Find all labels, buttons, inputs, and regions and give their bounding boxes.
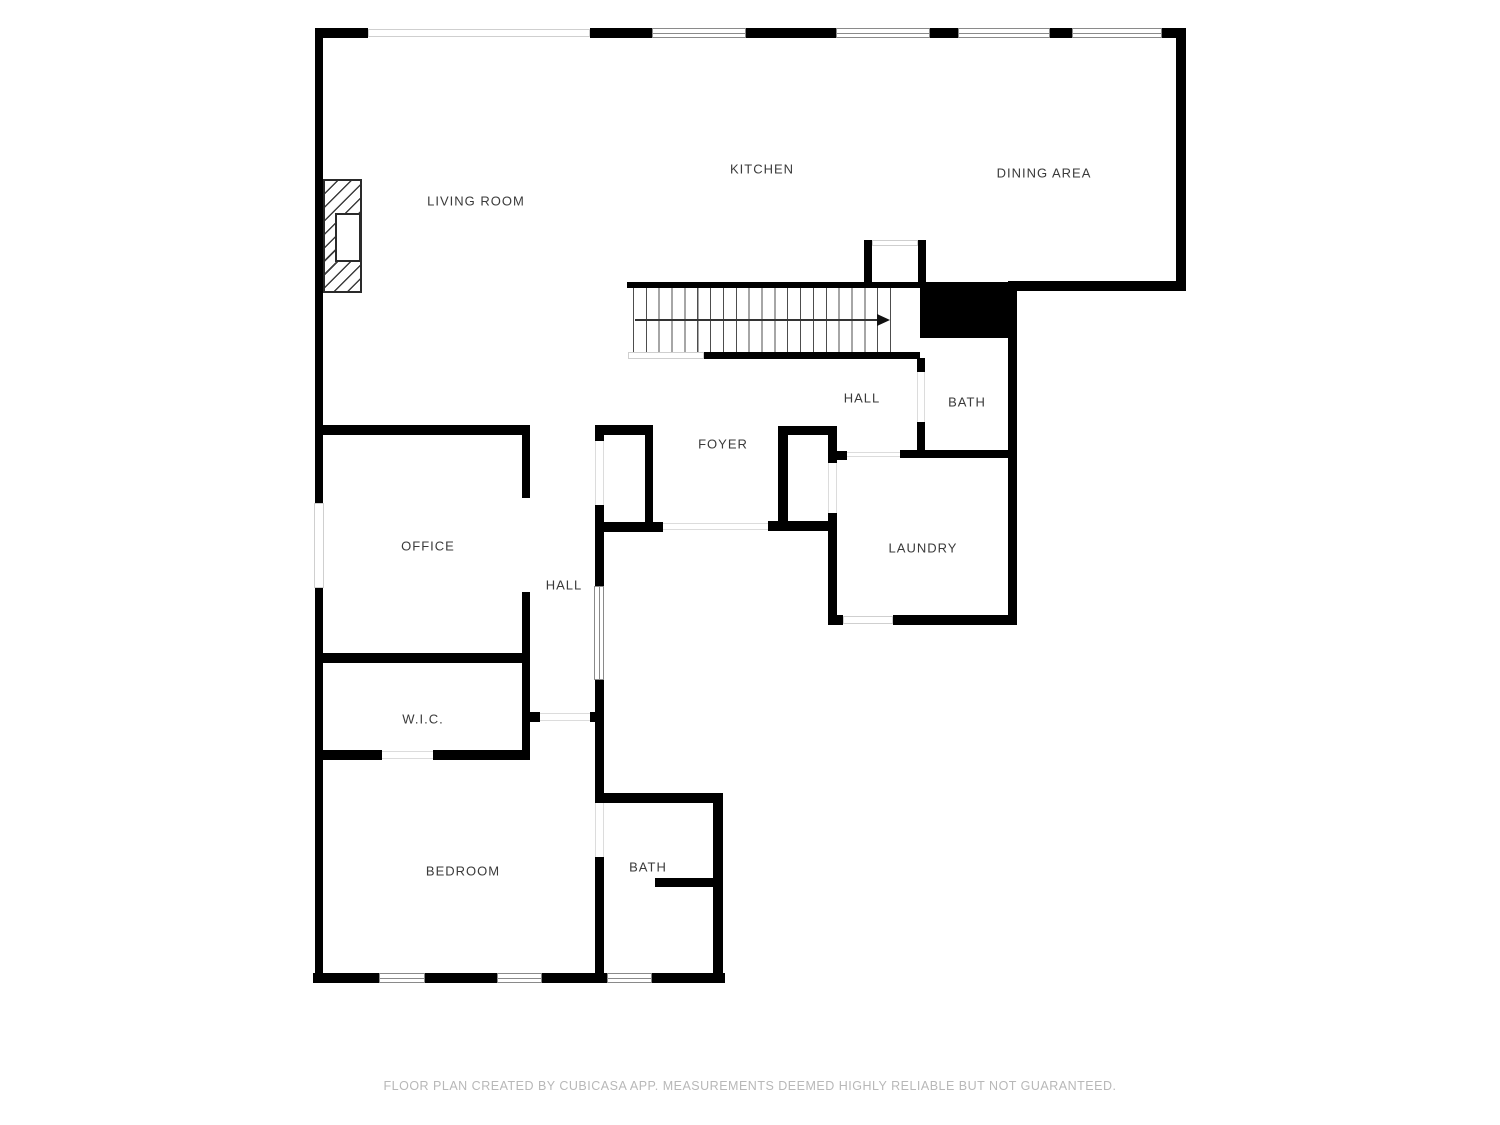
footer-disclaimer: FLOOR PLAN CREATED BY CUBICASA APP. MEAS… bbox=[384, 1079, 1117, 1093]
wall-segment bbox=[918, 240, 926, 283]
room-label-bath-upper: BATH bbox=[948, 395, 986, 410]
fireplace-firebox bbox=[335, 213, 361, 262]
window bbox=[843, 616, 893, 624]
wall-segment bbox=[1176, 28, 1186, 290]
wall-segment bbox=[522, 425, 530, 498]
wall-segment bbox=[746, 28, 836, 38]
wall-segment bbox=[828, 513, 837, 623]
wall-segment bbox=[930, 28, 958, 38]
stair-bottom-rail-light bbox=[628, 352, 704, 359]
wall-segment bbox=[595, 505, 604, 587]
wall-segment bbox=[590, 712, 604, 722]
window bbox=[836, 28, 930, 38]
room-label-foyer: FOYER bbox=[698, 437, 748, 452]
wall-segment bbox=[655, 878, 723, 887]
wall-segment bbox=[313, 973, 379, 983]
wall-segment bbox=[595, 425, 604, 441]
wall-segment bbox=[900, 450, 1017, 458]
wall-segment bbox=[1050, 28, 1072, 38]
opening bbox=[872, 240, 918, 246]
wall-segment bbox=[315, 425, 530, 435]
wall-segment bbox=[893, 615, 1017, 625]
wall-segment bbox=[595, 857, 604, 983]
wall-segment bbox=[590, 28, 652, 38]
wall-segment bbox=[315, 750, 382, 760]
door-opening bbox=[595, 441, 604, 505]
wall-segment bbox=[595, 522, 663, 532]
wall-segment bbox=[542, 973, 607, 983]
room-label-dining-area: DINING AREA bbox=[997, 166, 1092, 181]
wall-segment bbox=[530, 712, 540, 722]
window bbox=[497, 973, 542, 983]
room-label-bedroom: BEDROOM bbox=[426, 864, 500, 879]
stair-direction-line bbox=[635, 319, 877, 321]
room-label-living-room: LIVING ROOM bbox=[427, 194, 525, 209]
room-label-bath-lower: BATH bbox=[629, 860, 667, 875]
wall-mass bbox=[920, 282, 1016, 338]
door-opening bbox=[917, 372, 925, 422]
wall-segment bbox=[315, 588, 323, 983]
wall-segment bbox=[433, 750, 530, 760]
wall-segment bbox=[595, 793, 723, 803]
wall-segment bbox=[917, 358, 925, 372]
window bbox=[1072, 28, 1162, 38]
room-label-laundry: LAUNDRY bbox=[889, 541, 958, 556]
wall-segment bbox=[713, 793, 723, 983]
wall-segment bbox=[645, 425, 653, 523]
wall-segment bbox=[828, 426, 837, 463]
wall-segment bbox=[315, 653, 530, 663]
window bbox=[594, 586, 604, 680]
room-label-kitchen: KITCHEN bbox=[730, 162, 794, 177]
door-opening bbox=[847, 452, 900, 457]
window bbox=[607, 973, 652, 983]
wall-segment bbox=[864, 240, 872, 283]
door-opening bbox=[540, 713, 590, 721]
wall-segment bbox=[837, 451, 847, 460]
wall-segment bbox=[595, 680, 604, 803]
stair-bottom-rail bbox=[704, 352, 920, 359]
wall-segment bbox=[652, 973, 725, 983]
window bbox=[368, 29, 590, 37]
door-opening bbox=[382, 751, 433, 759]
room-label-office: OFFICE bbox=[401, 539, 455, 554]
door-opening bbox=[828, 463, 837, 513]
stair-direction-arrow-icon bbox=[877, 314, 890, 326]
room-label-hall-upper: HALL bbox=[844, 391, 881, 406]
window bbox=[379, 973, 425, 983]
room-label-wic: W.I.C. bbox=[402, 712, 443, 727]
door-opening bbox=[595, 803, 604, 857]
wall-segment bbox=[778, 426, 788, 530]
window bbox=[652, 28, 746, 38]
floor-plan: LIVING ROOM KITCHEN DINING AREA HALL BAT… bbox=[0, 0, 1500, 1125]
wall-segment bbox=[425, 973, 497, 983]
window bbox=[958, 28, 1050, 38]
wall-segment bbox=[522, 592, 530, 755]
wall-segment bbox=[917, 422, 925, 451]
door-opening bbox=[663, 523, 768, 530]
window bbox=[314, 503, 324, 588]
room-label-hall-lower: HALL bbox=[546, 578, 583, 593]
wall-segment bbox=[1014, 281, 1186, 291]
